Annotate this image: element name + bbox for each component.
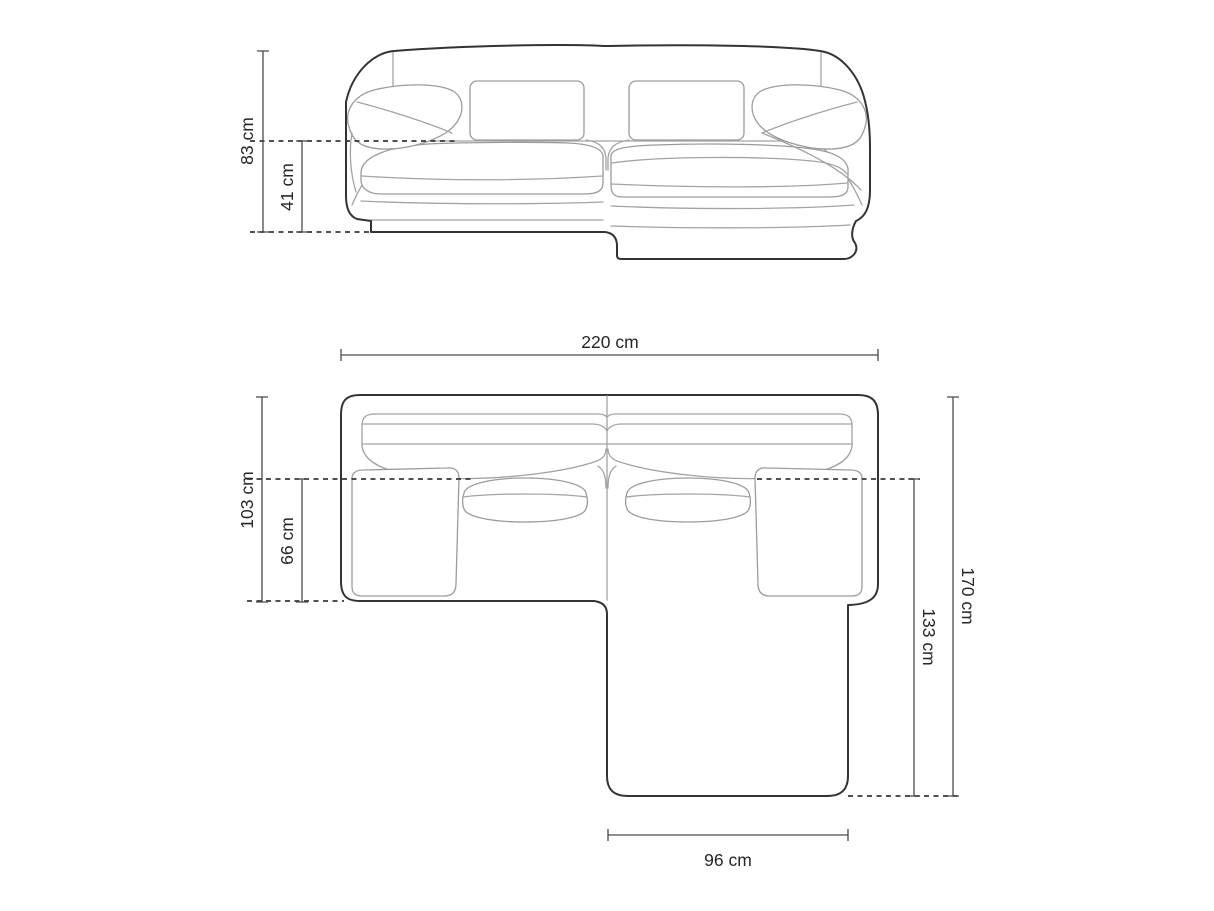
dim-label-seat-depth: 66 cm — [277, 517, 297, 565]
dim-label-chaise-depth: 133 cm — [919, 608, 939, 665]
band-right-lower — [611, 225, 850, 228]
sofa-dimension-diagram: 83 cm 41 cm 220 cm 103 — [0, 0, 1214, 911]
back-cushion-left — [470, 81, 584, 140]
seat-cushion-right — [611, 144, 848, 197]
sofa-dimension-diagram-page: 83 cm 41 cm 220 cm 103 — [0, 0, 1214, 911]
back-cushion-right — [629, 81, 744, 140]
armrest-pillow-left-plan — [352, 468, 459, 596]
armrest-pillow-right — [752, 85, 866, 149]
seat-cushion-left — [361, 142, 603, 194]
armrest-pillow-left — [348, 85, 462, 149]
top-plan-view — [341, 395, 878, 796]
armrest-pillow-left-drape — [350, 133, 356, 192]
dim-label-body-depth: 103 cm — [237, 471, 257, 528]
front-elevation-view — [346, 45, 870, 259]
lumbar-pillow-right — [626, 478, 751, 522]
dim-label-total-height: 83 cm — [237, 117, 257, 165]
dim-label-chaise-width: 96 cm — [704, 850, 752, 870]
dim-label-total-width: 220 cm — [581, 332, 638, 352]
armrest-pillow-right-plan — [755, 468, 862, 596]
dim-label-seat-height: 41 cm — [277, 163, 297, 211]
lumbar-pillow-left — [463, 478, 588, 522]
dim-label-total-depth: 170 cm — [958, 567, 978, 624]
band-left-upper — [361, 201, 603, 204]
band-right-upper — [611, 205, 854, 209]
